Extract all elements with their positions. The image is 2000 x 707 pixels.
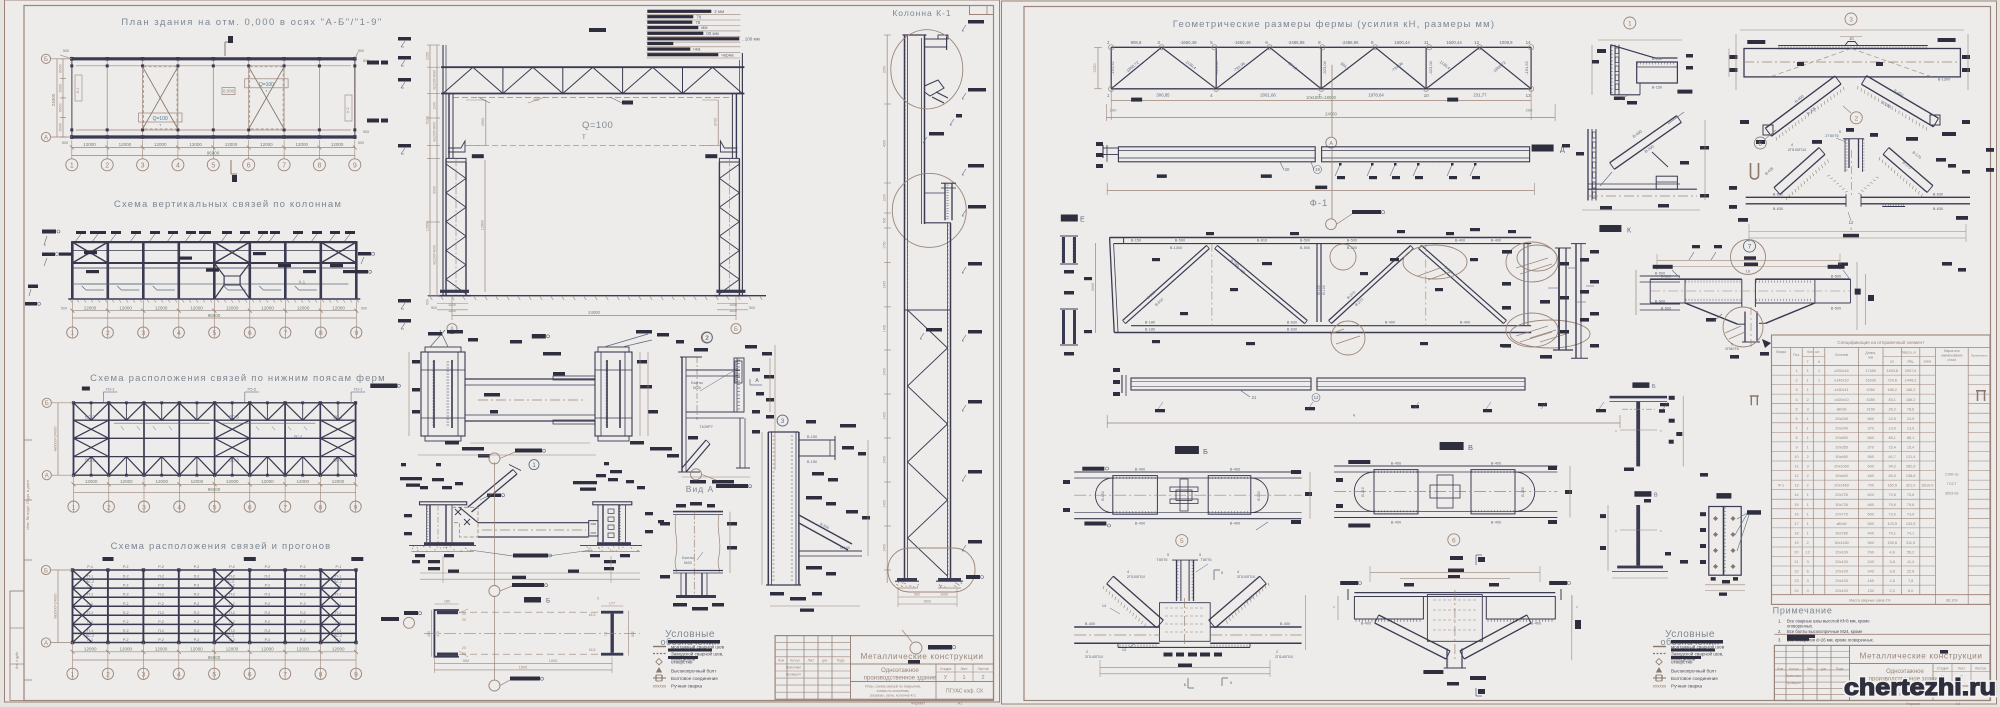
svg-text:660: 660 [1868, 436, 1874, 440]
svg-text:т: т [582, 132, 586, 141]
svg-text:600: 600 [1868, 512, 1874, 516]
svg-text:Р-2: Р-2 [158, 620, 164, 624]
svg-text:Б: Б [1652, 384, 1656, 390]
svg-text:6000: 6000 [59, 84, 63, 92]
svg-text:Изм: Изм [1777, 667, 1783, 671]
svg-text:А: А [1329, 141, 1333, 147]
svg-text:Поз.: Поз. [1793, 353, 1800, 357]
svg-text:500: 500 [431, 306, 437, 310]
svg-text:78: 78 [695, 20, 701, 25]
svg-text:20: 20 [462, 618, 466, 622]
svg-text:В-400: В-400 [1135, 467, 1146, 472]
svg-text:20: 20 [1794, 551, 1798, 555]
svg-text:96000: 96000 [208, 487, 221, 492]
svg-text:2001,66: 2001,66 [1260, 93, 1276, 98]
svg-text:В-180: В-180 [1145, 320, 1156, 325]
svg-text:12000: 12000 [261, 646, 274, 651]
svg-text:Масса сварных швов 1%: Масса сварных швов 1% [1849, 599, 1891, 603]
svg-text:В-400: В-400 [1385, 320, 1396, 325]
svg-text:Р-2: Р-2 [265, 620, 271, 624]
svg-text:Спецификация на отправочный: Спецификация на отправочный элемент [1837, 339, 1925, 345]
svg-text:20х265: 20х265 [1835, 446, 1847, 450]
svg-text:В-630: В-630 [1287, 327, 1298, 332]
svg-text:3700: 3700 [714, 118, 718, 126]
svg-text:мм: мм [701, 25, 707, 30]
svg-text:22,8: 22,8 [1907, 570, 1914, 574]
svg-text:Инв. № подл. Подп. и дата: Инв. № подл. Подп. и дата [25, 479, 30, 529]
svg-text:1600,44: 1600,44 [1394, 40, 1410, 45]
svg-text:306,85: 306,85 [1156, 93, 1170, 98]
svg-text:1.: 1. [1778, 619, 1782, 624]
svg-text:200: 200 [1526, 108, 1533, 113]
svg-text:В-210: В-210 [1361, 487, 1365, 496]
svg-text:Р-1: Р-1 [87, 620, 93, 624]
svg-text:7: 7 [1795, 426, 1797, 430]
svg-text:Р-2: Р-2 [300, 620, 306, 624]
svg-text:1: 1 [1807, 379, 1809, 383]
svg-text:240: 240 [1868, 560, 1874, 564]
svg-text:12000: 12000 [295, 142, 308, 147]
svg-text:290: 290 [1868, 551, 1874, 555]
svg-text:1: 1 [1807, 436, 1809, 440]
svg-text:Е: Е [1080, 217, 1085, 224]
svg-text:12: 12 [1314, 395, 1319, 400]
svg-text:2,6: 2,6 [1890, 579, 1895, 583]
svg-text:В-1300: В-1300 [1938, 77, 1951, 82]
svg-text:6000: 6000 [59, 123, 63, 131]
svg-text:155,6: 155,6 [1887, 541, 1897, 545]
svg-text:00 мм: 00 мм [706, 31, 718, 36]
svg-text:док.: док. [822, 659, 828, 663]
svg-text:5: 5 [212, 672, 216, 679]
svg-text:96000: 96000 [208, 313, 221, 318]
svg-text:Кол.уч: Кол.уч [790, 659, 800, 663]
svg-text:к160х11: к160х11 [1835, 388, 1849, 392]
svg-text:78,6: 78,6 [1907, 407, 1914, 411]
svg-text:В-400: В-400 [1361, 621, 1372, 626]
svg-text:К-1: К-1 [299, 280, 306, 285]
svg-text:2: 2 [1807, 541, 1809, 545]
svg-text:В-400: В-400 [1491, 520, 1502, 525]
svg-text:П-2: П-2 [300, 611, 306, 615]
svg-text:4: 4 [1795, 398, 1797, 402]
svg-text:500: 500 [463, 659, 469, 663]
svg-text:74,1: 74,1 [1907, 532, 1914, 536]
svg-text:Р-2: Р-2 [229, 565, 235, 569]
svg-text:186,2: 186,2 [1906, 388, 1916, 392]
svg-text:3.: 3. [1778, 638, 1782, 643]
svg-text:9: 9 [1795, 446, 1797, 450]
svg-text:3: 3 [142, 504, 146, 511]
svg-text:П-2: П-2 [229, 611, 235, 615]
svg-text:6: 6 [248, 330, 252, 337]
svg-text:12000: 12000 [260, 142, 273, 147]
svg-text:3150: 3150 [1866, 407, 1874, 411]
svg-text:В-160: В-160 [840, 546, 850, 550]
svg-text:ВС-2: ВС-2 [334, 634, 342, 638]
svg-text:12000: 12000 [154, 142, 167, 147]
svg-text:4: 4 [177, 672, 181, 679]
svg-text:ВС-2: ВС-2 [334, 580, 342, 584]
svg-text:12: 12 [1794, 474, 1798, 478]
svg-text:12: 12 [1474, 40, 1480, 45]
svg-text:16: 16 [1794, 512, 1798, 516]
svg-text:док.: док. [1821, 667, 1827, 671]
svg-text:П-1: П-1 [87, 629, 93, 633]
svg-text:1449,2: 1449,2 [1905, 379, 1917, 383]
svg-text:13,9: 13,9 [1907, 426, 1914, 430]
svg-text:Схема расположения связей и: Схема расположения связей и прогонов [111, 541, 332, 552]
svg-text:П-1: П-1 [335, 611, 341, 615]
svg-text:8к3000=24000: 8к3000=24000 [54, 594, 58, 619]
svg-text:к80х6: к80х6 [1837, 522, 1847, 526]
svg-text:6: 6 [248, 672, 252, 679]
svg-text:В-500: В-500 [1661, 274, 1672, 279]
svg-text:14: 14 [1526, 40, 1532, 45]
svg-text:9: 9 [354, 672, 358, 679]
svg-text:6000: 6000 [59, 103, 63, 111]
svg-text:2: 2 [981, 675, 984, 681]
svg-text:370: 370 [1868, 426, 1874, 430]
svg-text:24000: 24000 [588, 310, 600, 315]
svg-text:186,2: 186,2 [1887, 388, 1897, 392]
svg-text:1: 1 [1807, 532, 1809, 536]
svg-text:2П100П10: 2П100П10 [1237, 575, 1255, 579]
svg-text:9: 9 [354, 504, 358, 511]
svg-text:1453,8: 1453,8 [1886, 369, 1898, 373]
svg-text:В-590: В-590 [1175, 237, 1186, 242]
svg-text:П-1: П-1 [335, 593, 341, 597]
svg-text:ВС-3: ВС-3 [229, 458, 239, 463]
svg-text:4к1200=4800: 4к1200=4800 [433, 245, 437, 265]
svg-text:15: 15 [1122, 648, 1126, 652]
svg-text:12000: 12000 [155, 646, 168, 651]
svg-text:177: 177 [609, 602, 615, 606]
svg-text:17450: 17450 [1865, 369, 1876, 373]
svg-text:В-400: В-400 [1531, 621, 1542, 626]
svg-text:В-150: В-150 [807, 435, 817, 439]
svg-text:Болтовое соединение: Болтовое соединение [1671, 676, 1718, 681]
svg-text:План здания на отм. 0,000: План здания на отм. 0,000 в осях "А-Б"/"… [121, 17, 383, 28]
svg-text:отверстие: отверстие [1671, 660, 1693, 665]
svg-text:15,4: 15,4 [1889, 446, 1896, 450]
svg-text:4350: 4350 [1866, 388, 1874, 392]
svg-text:20х1460: 20х1460 [1834, 484, 1849, 488]
svg-text:П-2: П-2 [300, 629, 306, 633]
svg-text:55,2: 55,2 [1907, 551, 1914, 555]
svg-text:П-2: П-2 [123, 593, 129, 597]
svg-text:60,7: 60,7 [1889, 455, 1896, 459]
svg-text:11: 11 [1424, 40, 1429, 45]
svg-text:-161,52: -161,52 [1110, 60, 1115, 74]
svg-text:В-500: В-500 [1661, 306, 1672, 311]
svg-text:т: т [159, 122, 161, 127]
svg-text:2907,6: 2907,6 [1905, 369, 1917, 373]
svg-text:18: 18 [1794, 532, 1798, 536]
svg-text:3: 3 [1807, 407, 1809, 411]
svg-text:30х785: 30х785 [1835, 532, 1847, 536]
svg-text:4: 4 [1807, 589, 1809, 593]
svg-text:2: 2 [1807, 398, 1809, 402]
svg-text:4350: 4350 [1866, 398, 1874, 402]
svg-text:1: 1 [1807, 417, 1809, 421]
svg-text:12000: 12000 [190, 646, 203, 651]
svg-text:180: 180 [444, 600, 450, 604]
svg-text:Инв. и дубл.: Инв. и дубл. [15, 651, 19, 669]
svg-text:к140х10: к140х10 [1835, 379, 1849, 383]
svg-text:7100Р7: 7100Р7 [699, 424, 714, 429]
svg-text:12000: 12000 [84, 305, 97, 310]
svg-text:Р-1: Р-1 [336, 602, 342, 606]
svg-text:1978,64: 1978,64 [1368, 93, 1384, 98]
svg-text:В-150: В-150 [1131, 237, 1142, 242]
svg-text:1500: 1500 [923, 600, 931, 604]
svg-text:10: 10 [1794, 455, 1798, 459]
svg-text:7: 7 [283, 504, 287, 511]
svg-text:400: 400 [1868, 532, 1874, 536]
svg-text:2П140П10: 2П140П10 [1275, 655, 1293, 659]
svg-text:Р-2: Р-2 [265, 565, 271, 569]
svg-text:Р-2: Р-2 [123, 638, 129, 642]
svg-text:ВС-3: ВС-3 [229, 415, 239, 420]
svg-text:4: 4 [176, 163, 180, 170]
svg-text:П-2: П-2 [194, 611, 200, 615]
svg-text:П-1: П-1 [87, 611, 93, 615]
svg-text:73,0: 73,0 [1889, 512, 1896, 516]
svg-text:П-2: П-2 [265, 611, 271, 615]
svg-text:-323,04: -323,04 [1214, 60, 1219, 74]
svg-text:В-400: В-400 [1491, 461, 1502, 466]
svg-text:ц: ц [1353, 413, 1355, 417]
svg-text:П-2: П-2 [300, 575, 306, 579]
svg-text:20х240: 20х240 [1835, 426, 1847, 430]
svg-text:Выполнил: Выполнил [1786, 674, 1801, 678]
svg-text:8: 8 [318, 504, 322, 511]
svg-text:П-2: П-2 [123, 611, 129, 615]
svg-text:1: 1 [1807, 493, 1809, 497]
svg-text:Д: Д [1560, 147, 1565, 154]
svg-text:17: 17 [1794, 522, 1798, 526]
svg-text:9: 9 [354, 330, 358, 337]
svg-text:1: 1 [1807, 426, 1809, 430]
svg-text:8: 8 [319, 330, 323, 337]
svg-text:С390 по: С390 по [1945, 473, 1959, 477]
svg-text:Лист: Лист [1807, 667, 1814, 671]
svg-text:общ.: общ. [1907, 360, 1914, 364]
svg-text:12800: 12800 [481, 220, 485, 231]
svg-text:Б: Б [734, 327, 738, 333]
svg-text:Р-2: Р-2 [158, 602, 164, 606]
svg-text:1400: 1400 [883, 412, 887, 420]
svg-text:30х735: 30х735 [1835, 503, 1847, 507]
svg-text:к80х6: к80х6 [1837, 407, 1847, 411]
svg-text:Р-1: Р-1 [87, 638, 93, 642]
svg-text:4: 4 [1237, 570, 1239, 574]
svg-text:78: 78 [696, 14, 702, 19]
svg-text:1: 1 [1807, 388, 1809, 392]
svg-text:Примечание: Примечание [1971, 354, 1988, 358]
svg-text:Высокопрочный болт: Высокопрочный болт [671, 668, 717, 674]
svg-text:12000: 12000 [155, 479, 168, 484]
svg-text:200: 200 [1110, 108, 1117, 113]
svg-text:660: 660 [1868, 417, 1874, 421]
svg-text:11,4: 11,4 [1907, 560, 1914, 564]
svg-text:3: 3 [1807, 579, 1809, 583]
svg-text:12000: 12000 [119, 305, 132, 310]
svg-text:12000: 12000 [261, 305, 274, 310]
svg-text:1200: 1200 [433, 102, 437, 110]
svg-text:Стадия: Стадия [940, 667, 952, 671]
svg-text:130: 130 [1868, 589, 1874, 593]
svg-text:1: 1 [1807, 369, 1809, 373]
svg-text:1200: 1200 [883, 194, 887, 202]
svg-text:20х1000: 20х1000 [1834, 465, 1849, 469]
svg-text:19: 19 [1794, 541, 1798, 545]
svg-text:В-400: В-400 [1135, 521, 1146, 526]
svg-text:2П80Т6: 2П80Т6 [1725, 347, 1739, 351]
svg-text:79,6: 79,6 [1889, 503, 1896, 507]
svg-text:6: 6 [248, 504, 252, 511]
svg-text:Подп.: Подп. [1836, 667, 1845, 671]
svg-text:96000: 96000 [207, 150, 220, 155]
svg-text:Б: Б [45, 401, 49, 407]
svg-text:19: 19 [1746, 269, 1751, 274]
svg-text:30х460: 30х460 [1835, 455, 1847, 459]
svg-text:12000: 12000 [226, 479, 239, 484]
svg-text:15,4: 15,4 [1907, 446, 1914, 450]
svg-text:Р-2: Р-2 [123, 602, 129, 606]
svg-text:74,1: 74,1 [1889, 532, 1896, 536]
svg-text:5: 5 [1167, 553, 1169, 557]
svg-text:13,9: 13,9 [1889, 426, 1896, 430]
svg-text:В: В [1654, 493, 1658, 499]
svg-text:стали: стали [1948, 358, 1957, 362]
svg-text:В-500: В-500 [1300, 237, 1311, 242]
svg-text:-1650,49: -1650,49 [1234, 40, 1252, 45]
svg-text:Болтовое соединение: Болтовое соединение [671, 676, 718, 681]
svg-text:Лист: Лист [1958, 667, 1966, 671]
svg-text:12000: 12000 [83, 142, 96, 147]
svg-text:600: 600 [883, 218, 887, 224]
svg-text:2 мм: 2 мм [714, 9, 724, 14]
svg-text:6000: 6000 [59, 64, 63, 72]
svg-text:Р-2: Р-2 [229, 602, 235, 606]
svg-text:12600: 12600 [426, 221, 430, 232]
svg-text:321,0: 321,0 [1906, 484, 1916, 488]
svg-text:В-1300: В-1300 [1170, 245, 1183, 250]
svg-text:М20: М20 [693, 385, 702, 390]
svg-text:В-630: В-630 [1773, 206, 1784, 211]
svg-text:В-610: В-610 [1257, 237, 1268, 242]
svg-text:12000: 12000 [297, 305, 310, 310]
svg-text:4: 4 [1127, 570, 1129, 574]
svg-text:138,6: 138,6 [1906, 474, 1916, 478]
svg-text:П-2: П-2 [229, 575, 235, 579]
svg-text:3: 3 [1807, 560, 1809, 564]
svg-text:1: 1 [72, 504, 76, 511]
svg-text:К-2: К-2 [346, 107, 350, 112]
svg-text:560: 560 [1868, 455, 1874, 459]
svg-text:Т: Т [1807, 360, 1809, 364]
svg-text:2П100П10: 2П100П10 [1788, 147, 1807, 152]
svg-text:черна: черна [721, 52, 734, 57]
svg-text:Р-1: Р-1 [336, 638, 342, 642]
svg-text:6000: 6000 [433, 186, 437, 194]
svg-text:1600,44: 1600,44 [1446, 40, 1462, 45]
svg-text:88,1: 88,1 [1889, 436, 1896, 440]
svg-text:23: 23 [1794, 579, 1798, 583]
svg-text:П-2: П-2 [194, 575, 200, 579]
svg-text:460: 460 [1868, 503, 1874, 507]
svg-text:П-2: П-2 [158, 611, 164, 615]
svg-text:Р-1: Р-1 [336, 584, 342, 588]
svg-text:6: 6 [1452, 537, 1456, 544]
svg-text:12000: 12000 [190, 305, 203, 310]
svg-text:5: 5 [211, 163, 215, 170]
svg-text:5200: 5200 [426, 116, 430, 124]
svg-text:4: 4 [177, 504, 181, 511]
svg-text:ГО-1: ГО-1 [354, 387, 363, 392]
svg-text:2,0: 2,0 [1890, 589, 1895, 593]
svg-text:Р-2: Р-2 [158, 565, 164, 569]
svg-text:Выполнил: Выполнил [786, 666, 801, 670]
svg-text:3: 3 [141, 163, 145, 170]
svg-text:4к1200=4800: 4к1200=4800 [433, 70, 437, 90]
svg-text:П-2: П-2 [123, 575, 129, 579]
svg-text:24000: 24000 [51, 93, 56, 106]
svg-text:2: 2 [1854, 115, 1858, 122]
svg-text:3: 3 [142, 672, 146, 679]
svg-text:700: 700 [1868, 484, 1874, 488]
svg-text:Изм: Изм [778, 659, 784, 663]
svg-text:В-500: В-500 [1347, 237, 1358, 242]
svg-text:724,6: 724,6 [1887, 379, 1897, 383]
svg-text:7: 7 [1748, 244, 1752, 251]
svg-text:12000: 12000 [226, 646, 239, 651]
svg-text:94,2: 94,2 [1889, 465, 1896, 469]
svg-text:3: 3 [1849, 17, 1853, 24]
svg-text:П-2: П-2 [194, 593, 200, 597]
svg-text:В-150: В-150 [1257, 491, 1261, 500]
svg-text:13: 13 [1526, 93, 1532, 98]
svg-text:15: 15 [1794, 503, 1798, 507]
svg-text:ВС-3: ВС-3 [226, 634, 234, 638]
svg-text:66,109: 66,109 [1946, 599, 1958, 603]
svg-text:1: 1 [70, 330, 74, 337]
svg-text:М20: М20 [684, 560, 693, 565]
svg-text:В-100: В-100 [1322, 285, 1326, 294]
svg-text:Подп.: Подп. [837, 659, 846, 663]
svg-text:-1650,49: -1650,49 [1180, 40, 1198, 45]
svg-text:Р-2: Р-2 [194, 638, 200, 642]
svg-text:500: 500 [363, 130, 369, 134]
svg-text:Р-2: Р-2 [194, 602, 200, 606]
svg-text:1000: 1000 [940, 593, 948, 597]
svg-text:103,5: 103,5 [1887, 522, 1897, 526]
svg-text:Марка: Марка [1776, 350, 1786, 354]
svg-text:1500: 1500 [519, 666, 527, 670]
svg-text:5: 5 [1199, 553, 1201, 557]
svg-text:А1: А1 [958, 701, 964, 706]
svg-text:12000: 12000 [85, 479, 98, 484]
svg-text:ВС-2: ВС-2 [85, 458, 95, 463]
svg-text:560: 560 [1868, 541, 1874, 545]
svg-text:Р-2: Р-2 [194, 565, 200, 569]
svg-text:Р-2: Р-2 [300, 638, 306, 642]
svg-text:311,5: 311,5 [1906, 541, 1915, 545]
svg-text:3,8: 3,8 [1890, 570, 1895, 574]
svg-text:мм: мм [1868, 356, 1873, 360]
